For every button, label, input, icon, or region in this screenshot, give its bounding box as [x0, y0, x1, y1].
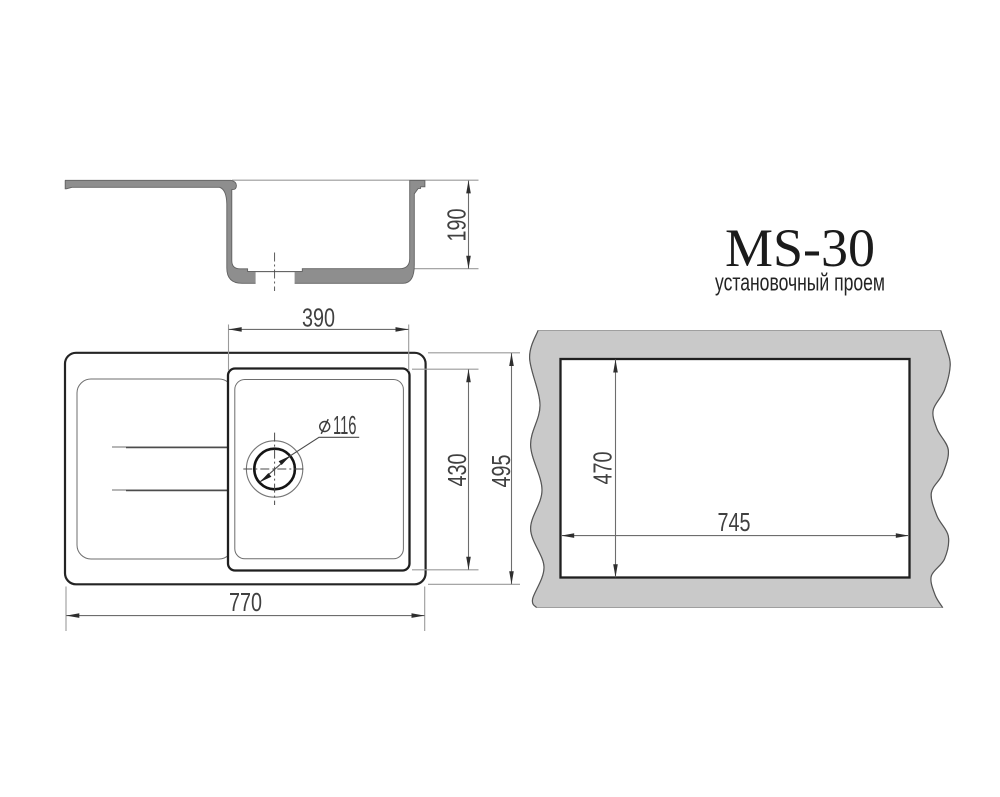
svg-text:190: 190 [442, 209, 472, 242]
svg-text:770: 770 [229, 587, 262, 617]
svg-text:390: 390 [302, 303, 335, 333]
svg-text:745: 745 [718, 507, 751, 537]
svg-text:установочный проем: установочный проем [715, 270, 885, 297]
svg-text:495: 495 [486, 455, 516, 488]
svg-text:470: 470 [588, 452, 618, 485]
svg-text:116: 116 [333, 410, 357, 440]
svg-text:430: 430 [442, 454, 472, 487]
